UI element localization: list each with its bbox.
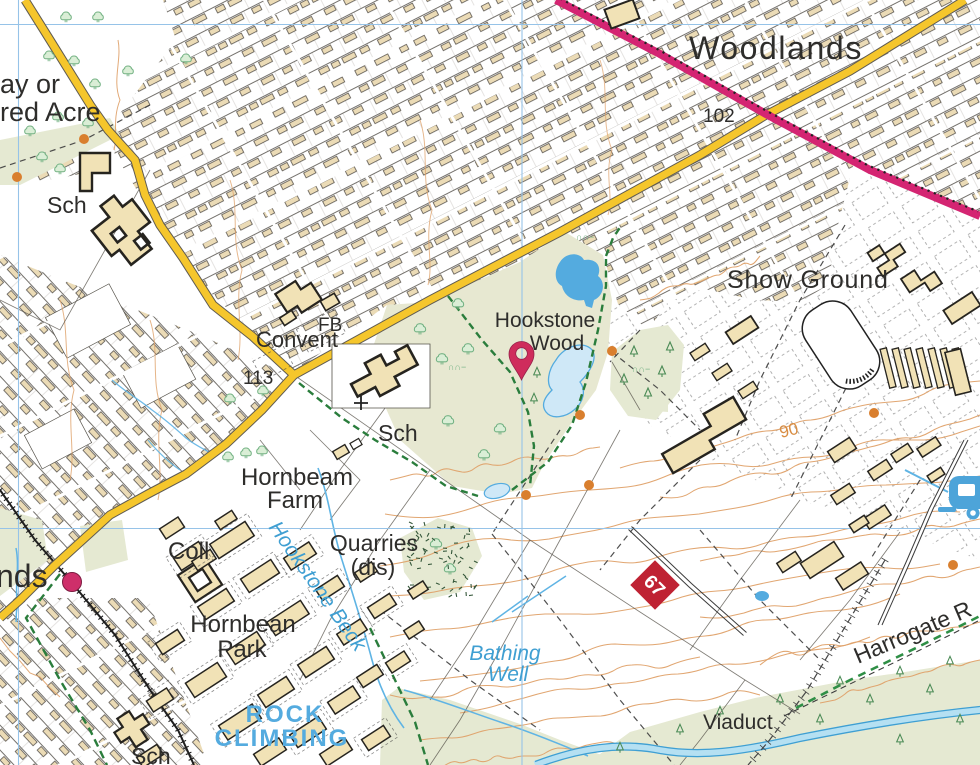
svg-text:Bathing: Bathing bbox=[469, 642, 541, 665]
svg-text:Quarries: Quarries bbox=[330, 530, 418, 556]
svg-text:Viaduct: Viaduct bbox=[703, 711, 773, 734]
svg-text:ay or: ay or bbox=[0, 69, 60, 99]
svg-text:Woodlands: Woodlands bbox=[689, 30, 863, 66]
svg-text:Coll: Coll bbox=[168, 538, 209, 565]
svg-text:Hookstone: Hookstone bbox=[495, 309, 595, 332]
svg-text:Show Ground: Show Ground bbox=[727, 266, 889, 294]
svg-text:FB: FB bbox=[318, 315, 342, 336]
svg-text:red Acre: red Acre bbox=[0, 97, 101, 127]
svg-text:Sch: Sch bbox=[47, 192, 87, 218]
svg-text:Well: Well bbox=[488, 663, 530, 686]
svg-text:(dis): (dis) bbox=[351, 554, 396, 580]
svg-text:nds: nds bbox=[0, 558, 48, 594]
svg-text:∩∩−: ∩∩− bbox=[448, 362, 466, 372]
svg-text:Park: Park bbox=[217, 636, 267, 663]
svg-text:∩∩−: ∩∩− bbox=[576, 232, 594, 242]
svg-text:Farm: Farm bbox=[267, 487, 323, 514]
svg-text:Wood: Wood bbox=[530, 332, 584, 355]
svg-text:Sch: Sch bbox=[131, 743, 171, 765]
svg-text:102: 102 bbox=[703, 106, 735, 127]
svg-text:Sch: Sch bbox=[378, 420, 418, 446]
svg-text:113: 113 bbox=[243, 368, 273, 389]
svg-text:ROCK: ROCK bbox=[246, 701, 325, 728]
svg-text:∩∩−: ∩∩− bbox=[632, 364, 650, 374]
svg-text:CLIMBING: CLIMBING bbox=[215, 725, 350, 752]
svg-text:Hornbean: Hornbean bbox=[190, 611, 295, 638]
